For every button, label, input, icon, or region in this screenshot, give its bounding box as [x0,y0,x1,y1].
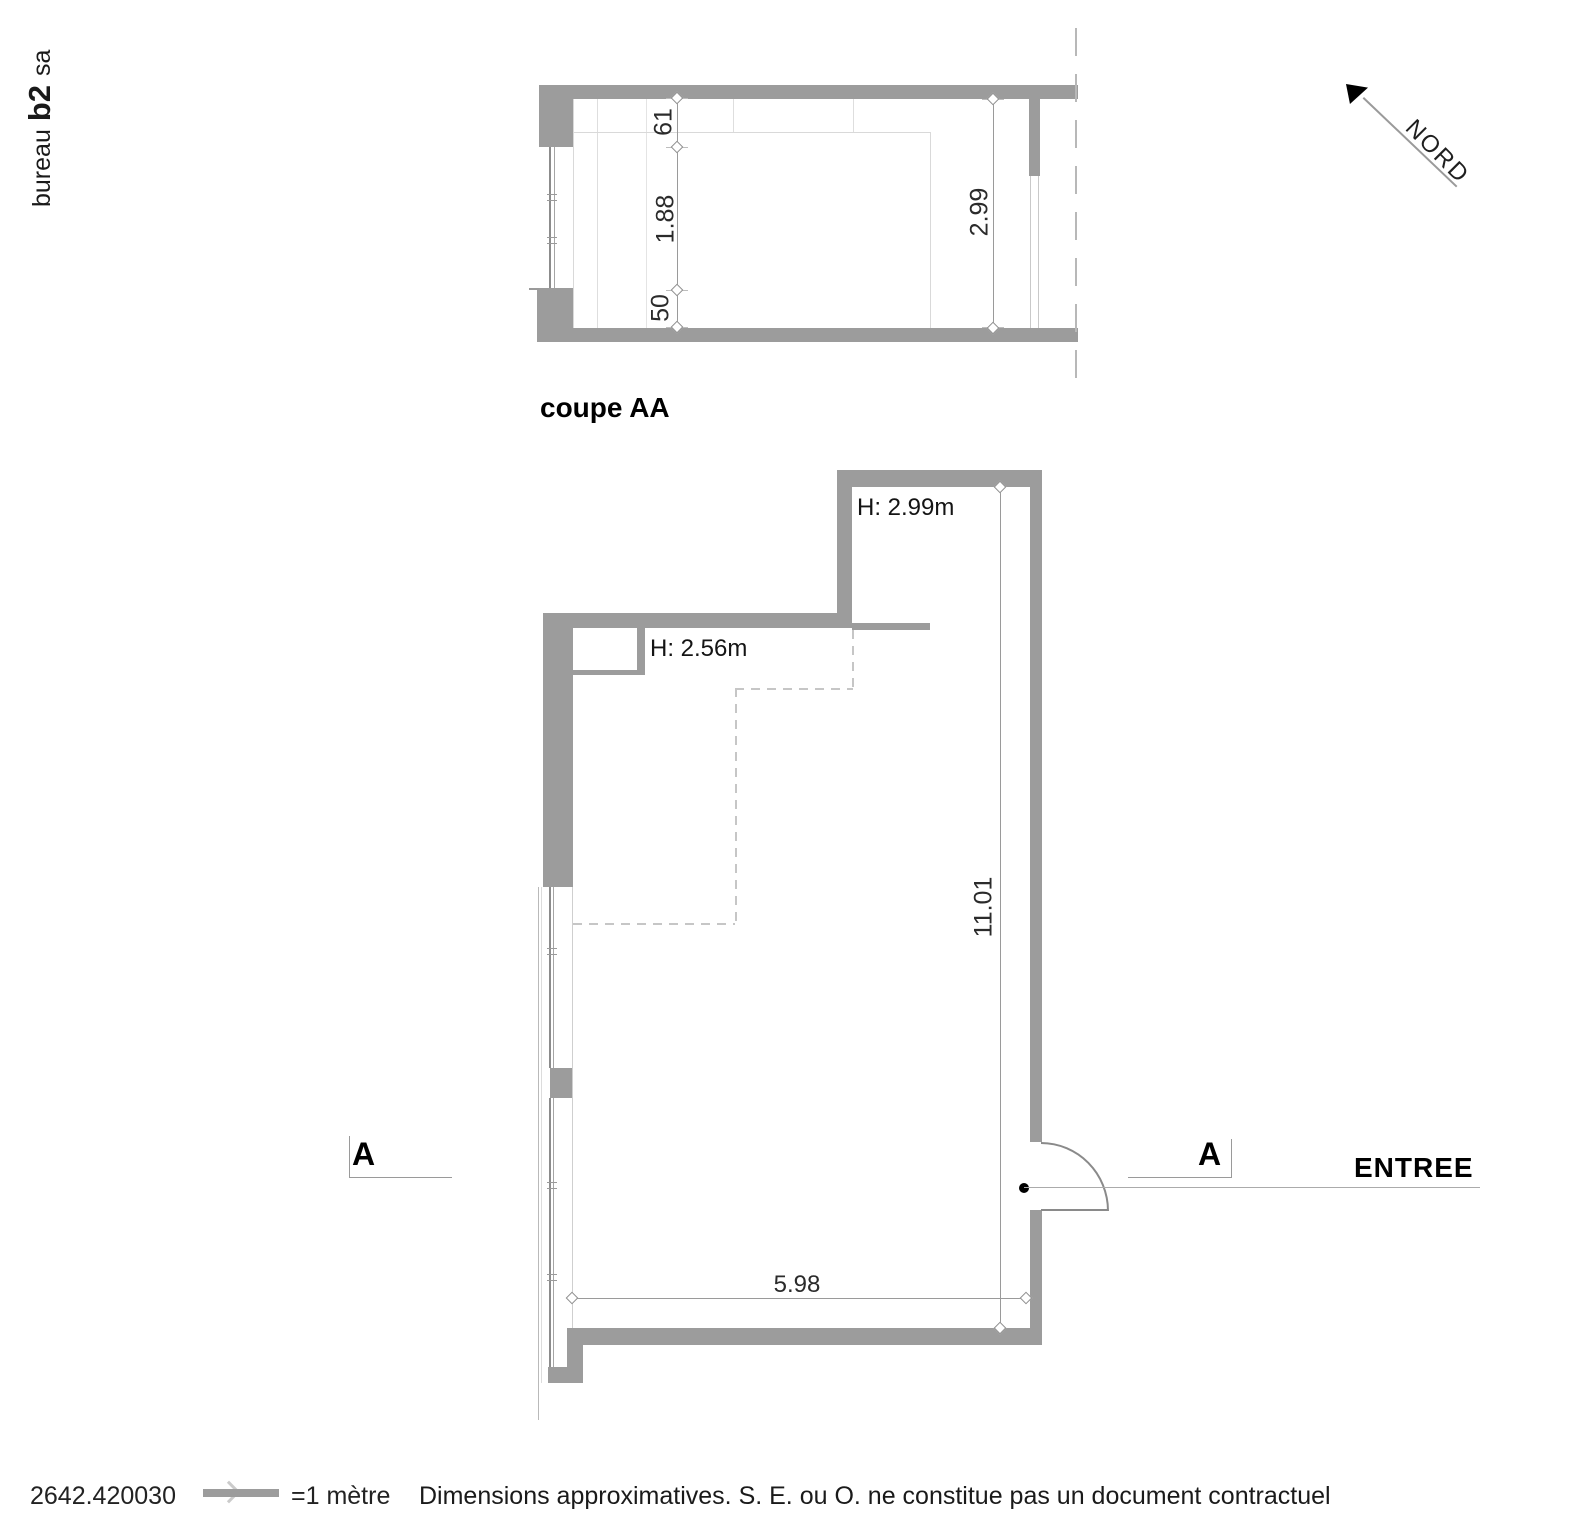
dimension-label-height: 2.99 [966,188,995,237]
plan-ceiling-zone-dashed-line [735,688,853,690]
plan-wall-bottom [567,1328,1042,1345]
section-wall-left-bottom [537,288,573,342]
drawing-number: 2642.420030 [30,1482,176,1511]
plan-wall-step-stub [548,1367,583,1383]
plan-window-outer-line [541,887,542,1383]
section-interior-line [573,99,574,328]
section-window-glass-line [549,147,551,288]
section-marker-a-left: A [352,1136,375,1173]
plan-window-mullion-tick [547,1188,557,1189]
dimension-label-lintel: 61 [650,108,679,136]
section-window-glass-line [554,147,555,288]
section-line-end-dot [1019,1183,1029,1193]
plan-lintel-bar [852,623,930,630]
plan-window-glass-line [549,887,551,1068]
section-marker-bracket [349,1136,350,1178]
section-interior-line [930,132,931,328]
plan-window-glass-line [553,887,554,1068]
floor-plan-sheet: bureaub2sa 61 1.88 50 2.99 coupe AA [0,0,1581,1536]
plan-wall-top [837,470,1042,487]
section-window-transom-tick [547,200,557,201]
section-marker-bracket [1128,1177,1232,1178]
ceiling-height-low-label: H: 2.56m [650,635,747,663]
dimension-label-width: 5.98 [737,1271,857,1299]
disclaimer-text: Dimensions approximatives. S. E. ou O. n… [419,1482,1331,1511]
section-sill-tick [529,288,539,290]
plan-ceiling-zone-dashed-line [573,923,735,925]
section-partition-line [1030,176,1031,328]
entrance-label: ENTREE [1354,1152,1474,1184]
dimension-line-vertical [1000,487,1001,1328]
dimension-marker [671,141,684,154]
section-window-transom-tick [547,194,557,195]
section-marker-a-right: A [1198,1136,1221,1173]
plan-window-mullion-tick [547,1274,557,1275]
logo-prefix: bureau [28,129,56,207]
scale-label: =1 mètre [291,1482,390,1511]
plan-window-glass-line [553,1098,554,1367]
plan-ceiling-zone-dashed-line [852,630,854,690]
plan-niche-opening [573,628,637,670]
section-marker-bracket [349,1177,452,1178]
plan-window-mullion-tick [547,948,557,949]
plan-window-outer-line [538,887,539,1420]
section-partition-line [1038,176,1039,328]
door-leaf [1041,1209,1108,1211]
plan-window-mullion-tick [547,954,557,955]
section-interior-line [853,99,854,132]
plan-wall-right-lower [1030,1210,1042,1345]
section-marker-bracket [1231,1139,1232,1178]
plan-window-mullion-tick [547,1182,557,1183]
section-window-transom-tick [547,243,557,244]
plan-ceiling-zone-dashed-line [735,688,737,925]
section-wall-left-top [539,85,573,147]
section-ceiling-line [573,132,930,133]
plan-window-pier [550,1068,573,1098]
plan-window-glass-line [549,1098,551,1367]
company-logo: bureaub2sa [22,50,58,207]
section-window-transom-tick [547,237,557,238]
north-label: NORD [1399,114,1474,189]
section-cut-line [1024,1187,1480,1188]
door-swing-arc [1041,1142,1109,1211]
logo-bold: b2 [22,85,57,121]
plan-window-mullion-tick [547,1280,557,1281]
dimension-label-sill: 50 [647,294,676,322]
section-title: coupe AA [540,392,670,424]
plan-wall-inner-face-line [572,887,573,1328]
section-interior-line [733,99,734,132]
plan-wall-jog-vertical [837,470,852,628]
plan-wall-right-upper [1030,487,1042,1142]
section-wall-right-pier [1029,99,1040,176]
section-axis-dashed-line [1075,28,1077,392]
dimension-label-window: 1.88 [652,195,681,244]
ceiling-height-main-label: H: 2.99m [857,494,954,522]
scale-bar [203,1489,279,1497]
logo-suffix: sa [28,50,56,76]
dimension-marker [566,1292,579,1305]
section-interior-line [597,99,598,328]
plan-wall-top-left [543,613,852,628]
dimension-label-length: 11.01 [970,877,999,938]
